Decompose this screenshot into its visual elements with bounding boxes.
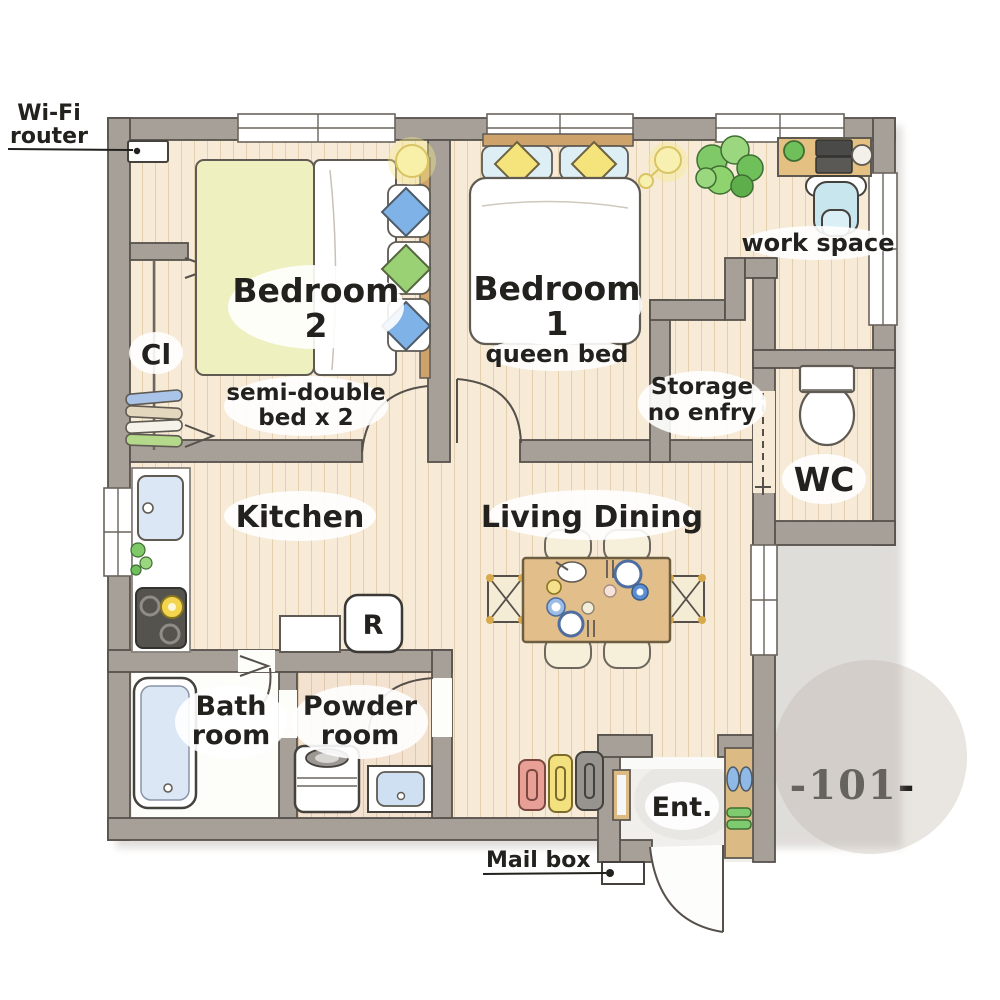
wall-step-horizontal	[745, 258, 777, 278]
wifi-label-line1: Wi-Fi	[17, 101, 81, 126]
wall-left	[108, 118, 130, 840]
kitchen-label: Kitchen	[236, 500, 365, 535]
powder-room-label-line2: room	[321, 720, 400, 751]
bedroom2-note1: semi-double	[226, 380, 385, 406]
bedroom2-number: 2	[305, 306, 328, 345]
powder-faucet-icon	[398, 793, 405, 800]
entrance-label: Ent.	[652, 792, 713, 823]
floor-plan-illustration: -101-	[0, 0, 1000, 1000]
suitcase-pink	[519, 760, 545, 810]
bathroom-label-line2: room	[192, 720, 271, 751]
dining-table	[523, 558, 670, 642]
faucet-icon	[143, 503, 153, 513]
desk-plant-icon	[784, 141, 804, 161]
bedroom2-label: Bedroom	[232, 271, 399, 310]
wall-step-vertical	[725, 258, 745, 320]
floor-plan-svg: -101-	[0, 0, 1000, 1000]
wall-kitchen-bottom	[108, 650, 452, 672]
cabinet	[280, 616, 340, 652]
wall-bedroom-divider	[428, 140, 450, 462]
living-dining-label: Living Dining	[481, 500, 703, 535]
suitcase-gray	[576, 752, 603, 810]
wall-entrance-top-left	[598, 735, 652, 757]
powder-sink-icon	[377, 772, 424, 806]
wall-bottom	[108, 818, 620, 840]
desk-lamp-icon	[852, 145, 872, 165]
bowl-cream	[582, 602, 594, 614]
shoe-shelf	[725, 748, 753, 858]
bed1-headboard	[483, 134, 633, 146]
powder-door-opening	[432, 678, 452, 737]
cup-pink	[604, 585, 616, 597]
folding-stool-right	[666, 574, 706, 624]
wall-wc-left-upper	[753, 278, 775, 350]
wifi-leader-line	[8, 149, 133, 150]
bedroom2-note2: bed x 2	[258, 405, 353, 431]
suitcases	[519, 752, 603, 812]
keyboard-icon	[816, 157, 852, 173]
suitcase-yellow	[549, 755, 572, 812]
refrigerator: R	[345, 595, 402, 652]
wall-storage-top	[650, 300, 725, 320]
wall-closet-stub	[130, 243, 188, 260]
slippers-green-icon	[727, 808, 751, 817]
drain-icon	[164, 784, 172, 792]
storage-label-line2: no enfry	[648, 400, 757, 426]
mailbox-label: Mail box	[486, 848, 591, 873]
toilet-tank-icon	[800, 366, 854, 392]
workspace-label: work space	[742, 229, 895, 257]
kitchen	[131, 468, 190, 652]
powder-room-label-line1: Powder	[303, 691, 418, 722]
toilet-bowl-icon	[800, 385, 854, 445]
wall-bedroom1-living	[520, 440, 753, 462]
bed2-lamp-icon	[396, 145, 428, 177]
wc-label: WC	[794, 460, 855, 499]
storage-label-line1: Storage	[651, 374, 753, 400]
wc	[800, 366, 854, 445]
cup-yellow	[547, 580, 561, 594]
laptop-icon	[816, 140, 852, 156]
closet-label: Cl	[141, 338, 171, 371]
bathroom-label-line1: Bath	[196, 691, 267, 722]
plate-blue-rim-2	[559, 612, 583, 636]
wifi-label-line2: router	[10, 124, 88, 149]
folding-stool-left	[486, 574, 526, 624]
refrigerator-label: R	[363, 610, 384, 641]
plate-blue-rim-1	[615, 561, 641, 587]
bedroom1-note: queen bed	[486, 340, 629, 368]
slippers-blue-icon	[727, 767, 739, 791]
mailbox-leader-line	[483, 873, 606, 874]
bedroom1-label: Bedroom	[473, 269, 640, 308]
